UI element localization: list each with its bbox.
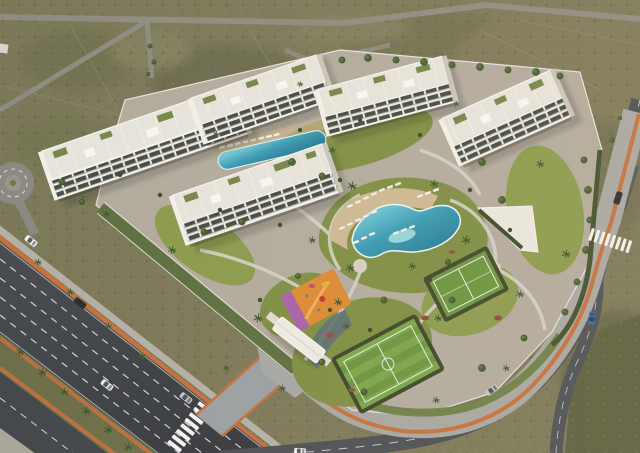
aerial-render: Aerial 3D render of a white low-rise apa…	[0, 0, 640, 453]
light-overlay	[0, 0, 640, 453]
